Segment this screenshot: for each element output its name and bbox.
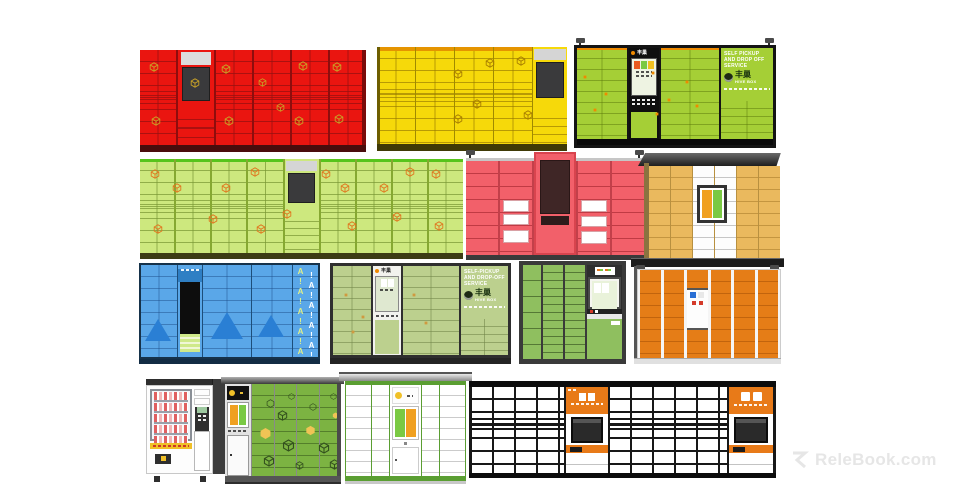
canopy bbox=[638, 153, 781, 166]
console-header bbox=[178, 269, 202, 282]
cube-icon bbox=[208, 214, 218, 224]
plinth bbox=[634, 358, 781, 364]
cube-icon bbox=[153, 224, 163, 234]
sq-icon bbox=[655, 112, 659, 116]
dark-green-locker-model bbox=[225, 377, 341, 484]
icon-layer bbox=[252, 384, 341, 478]
cube-icon bbox=[256, 224, 266, 234]
header-glyph bbox=[741, 392, 750, 401]
console-sign bbox=[587, 265, 622, 277]
locker-column bbox=[737, 166, 758, 258]
console-column bbox=[587, 265, 622, 359]
plinth bbox=[225, 476, 341, 484]
side-edge bbox=[377, 47, 380, 144]
screen-tray bbox=[180, 334, 200, 352]
slot-row bbox=[194, 389, 210, 396]
indicator-dot bbox=[404, 442, 407, 445]
machine-front bbox=[146, 385, 213, 474]
cube-icon bbox=[263, 455, 275, 467]
product-shelf bbox=[154, 425, 188, 435]
console-lower-doors bbox=[566, 453, 608, 473]
indicator-dot bbox=[590, 310, 593, 313]
cube-icon bbox=[516, 56, 526, 66]
locker-column bbox=[734, 270, 755, 358]
locker-columns: A!A!A!A!A! !A!A!A!A! bbox=[141, 265, 318, 357]
cube-icon bbox=[221, 64, 231, 74]
console-column bbox=[729, 387, 773, 473]
keypad-tablet bbox=[733, 447, 745, 452]
sq-icon bbox=[424, 321, 428, 325]
locker-column bbox=[664, 270, 685, 358]
cube-icon bbox=[190, 78, 200, 88]
cube-icon bbox=[332, 62, 342, 72]
console-header bbox=[566, 387, 608, 414]
locker-column bbox=[523, 265, 541, 359]
icon-layer bbox=[333, 266, 508, 355]
hexo-icon bbox=[309, 403, 317, 411]
cube-icon bbox=[434, 221, 444, 231]
console-column bbox=[178, 265, 202, 357]
small-green-locker-model bbox=[519, 261, 626, 364]
sq-icon bbox=[351, 330, 355, 334]
cube-icon bbox=[282, 439, 295, 452]
cube-icon bbox=[453, 114, 463, 124]
sq-icon bbox=[685, 80, 689, 84]
foot bbox=[154, 476, 160, 482]
canopy bbox=[221, 377, 344, 384]
vending-machine-model bbox=[146, 379, 229, 482]
blue-locker-model: A!A!A!A!A! !A!A!A!A! bbox=[139, 263, 320, 364]
cube-icon bbox=[277, 410, 288, 421]
locker-column bbox=[346, 385, 371, 476]
locker-column bbox=[671, 166, 692, 258]
console-column bbox=[534, 152, 576, 255]
mailbox-grid bbox=[610, 387, 727, 473]
sq-icon bbox=[695, 104, 699, 108]
product-shelf bbox=[154, 392, 188, 402]
cube-icon bbox=[340, 183, 350, 193]
cube-icon bbox=[276, 103, 285, 112]
locker-column bbox=[758, 270, 779, 358]
sq-icon bbox=[583, 75, 587, 79]
foot bbox=[200, 476, 206, 482]
side-edge bbox=[337, 384, 341, 478]
white-door bbox=[503, 230, 529, 243]
white-door bbox=[581, 200, 607, 211]
console-column bbox=[390, 385, 421, 476]
triangle-logo-icon bbox=[258, 315, 284, 337]
canvas: 丰巢 bbox=[0, 0, 960, 504]
console-screen bbox=[571, 417, 603, 443]
cube-icon bbox=[347, 221, 357, 231]
sign-plaque bbox=[595, 267, 615, 275]
door-handle-dot bbox=[395, 459, 397, 461]
screen-tray bbox=[541, 216, 569, 225]
logo-dot-icon bbox=[395, 392, 402, 399]
cube-icon bbox=[172, 183, 182, 193]
tan-locker-model bbox=[644, 153, 780, 262]
plinth bbox=[577, 139, 773, 145]
screen-tile bbox=[713, 190, 723, 218]
console-lower-doors bbox=[729, 453, 773, 473]
product-shelf bbox=[154, 414, 188, 424]
sq-icon bbox=[593, 108, 597, 112]
console-logo bbox=[392, 387, 419, 404]
console-lower-door bbox=[587, 319, 622, 359]
header-text-lines bbox=[571, 403, 603, 405]
locker-column bbox=[687, 270, 708, 358]
slot-row bbox=[194, 398, 210, 405]
cube-icon bbox=[334, 114, 344, 124]
pink-locker-model bbox=[466, 150, 644, 260]
keypad-panel bbox=[195, 407, 209, 433]
product-shelf bbox=[154, 403, 188, 413]
hexo-icon bbox=[288, 393, 295, 400]
icon-layer bbox=[577, 48, 773, 139]
locker-columns bbox=[523, 265, 622, 359]
plinth bbox=[139, 359, 320, 364]
console-screen bbox=[227, 402, 249, 428]
locker-columns bbox=[637, 269, 781, 359]
light-green-locker-model bbox=[140, 159, 463, 259]
header-glyph bbox=[588, 393, 595, 401]
control-panel-column bbox=[194, 389, 210, 471]
cube-icon bbox=[258, 78, 267, 87]
locker-column bbox=[372, 385, 389, 476]
yellow-locker-model bbox=[377, 47, 567, 151]
icon-layer bbox=[377, 47, 567, 144]
locker-column bbox=[649, 166, 670, 258]
cube-icon bbox=[431, 169, 441, 179]
white-door bbox=[503, 214, 529, 225]
long-white-locker-model bbox=[469, 381, 776, 478]
locker-column bbox=[543, 265, 563, 359]
cube-icon bbox=[295, 461, 304, 470]
cube-icon bbox=[379, 183, 389, 193]
security-camera-icon bbox=[635, 150, 644, 155]
screen-tile bbox=[406, 409, 416, 437]
dispense-slot bbox=[155, 454, 171, 464]
canopy bbox=[631, 258, 784, 267]
cube-icon bbox=[149, 62, 159, 72]
console-screen bbox=[697, 185, 727, 223]
label-tag bbox=[611, 321, 620, 325]
cube-icon bbox=[221, 183, 231, 193]
cube-icon bbox=[321, 169, 331, 179]
pickup-door bbox=[392, 447, 419, 474]
sq-icon bbox=[412, 293, 416, 297]
locker-column bbox=[203, 265, 251, 357]
sq-icon bbox=[604, 92, 608, 96]
pattern-text: A!A!A!A!A! bbox=[296, 267, 304, 357]
console-shelf bbox=[566, 445, 608, 453]
locker-body: A!A!A!A!A! !A!A!A!A! bbox=[139, 263, 320, 359]
icon-layer bbox=[140, 50, 366, 145]
screen-tile bbox=[230, 405, 238, 425]
triangle-logo-icon bbox=[145, 319, 171, 341]
watermark-text: ReleBook.com bbox=[815, 450, 937, 470]
header-text-lines bbox=[568, 389, 578, 391]
triangle-logo-icon bbox=[211, 312, 243, 339]
sq-icon bbox=[344, 293, 348, 297]
locker-column bbox=[500, 161, 532, 255]
locker-body: 丰巢 SELF-PICKUP AND DROP-OFF SERVICE bbox=[330, 263, 511, 358]
canopy bbox=[339, 372, 472, 381]
cube-icon bbox=[472, 99, 482, 109]
cube-icon bbox=[151, 116, 161, 126]
sage-hivebox-locker-model: 丰巢 SELF-PICKUP AND DROP-OFF SERVICE bbox=[330, 263, 511, 364]
screen-tile bbox=[239, 405, 247, 425]
console-screen bbox=[540, 160, 570, 214]
door-handle-dot bbox=[230, 454, 232, 456]
pickup-door bbox=[194, 431, 210, 471]
indicator-dot bbox=[692, 301, 696, 305]
locker-column bbox=[440, 385, 465, 476]
keypad-buttons bbox=[198, 415, 206, 417]
security-camera-icon bbox=[576, 38, 585, 43]
console-logo bbox=[227, 386, 249, 400]
screen-tile bbox=[395, 409, 405, 437]
console-column bbox=[225, 384, 251, 478]
app-icon bbox=[690, 292, 696, 298]
pattern-text: !A!A!A!A! bbox=[307, 271, 315, 357]
banner-strip bbox=[150, 443, 192, 449]
text-lines bbox=[228, 430, 248, 432]
locker-columns bbox=[345, 384, 466, 477]
hex-icon bbox=[305, 425, 316, 436]
console-screen bbox=[687, 288, 708, 330]
cube-icon bbox=[405, 167, 415, 177]
watermark: ReleBook.com bbox=[790, 450, 937, 470]
cube-icon bbox=[453, 69, 463, 79]
orange-locker-model bbox=[634, 258, 781, 364]
sq-icon bbox=[651, 71, 655, 75]
relebook-logo-icon bbox=[790, 450, 810, 470]
cube-icon bbox=[250, 167, 260, 177]
cube-icon bbox=[392, 212, 402, 222]
locker-column bbox=[578, 161, 610, 255]
sq-icon bbox=[667, 98, 671, 102]
pattern-column: A!A!A!A!A! !A!A!A!A! bbox=[293, 265, 318, 357]
console-screen bbox=[588, 277, 621, 309]
locker-column bbox=[640, 270, 661, 358]
logo-dot-icon bbox=[229, 390, 235, 396]
keypad-tablet bbox=[570, 447, 582, 452]
pickup-door bbox=[227, 435, 249, 476]
cube-icon bbox=[224, 116, 234, 126]
cube-icon bbox=[282, 209, 292, 219]
console-screen bbox=[180, 282, 200, 334]
plinth bbox=[345, 477, 466, 484]
side-edge bbox=[362, 50, 366, 145]
cube-icon bbox=[318, 442, 330, 454]
plinth bbox=[140, 253, 463, 259]
header-text-lines bbox=[734, 404, 768, 406]
indicator-dot bbox=[699, 301, 703, 305]
console-column bbox=[566, 387, 608, 473]
keypad-buttons bbox=[198, 419, 206, 421]
console-screen bbox=[734, 417, 768, 443]
security-camera-icon bbox=[466, 150, 475, 155]
icon-layer bbox=[140, 159, 463, 253]
cube-icon bbox=[150, 169, 160, 179]
locker-column bbox=[422, 385, 439, 476]
locker-column bbox=[759, 166, 780, 258]
hex-icon bbox=[259, 427, 272, 440]
plinth bbox=[330, 358, 511, 364]
plinth bbox=[469, 473, 776, 478]
header-glyph bbox=[579, 393, 586, 401]
header-glyph bbox=[753, 392, 762, 401]
keypad-screen bbox=[197, 407, 207, 413]
screen-card bbox=[594, 283, 601, 293]
indicator-dot bbox=[595, 310, 598, 313]
white-door bbox=[581, 216, 607, 227]
locker-column bbox=[466, 161, 498, 255]
console-shelf bbox=[729, 445, 773, 453]
app-icon bbox=[698, 292, 704, 298]
plinth bbox=[140, 145, 366, 152]
locker-column bbox=[141, 265, 177, 357]
security-camera-icon bbox=[765, 38, 774, 43]
locker-columns bbox=[472, 387, 773, 473]
locker-column bbox=[565, 265, 585, 359]
cube-icon bbox=[294, 116, 304, 126]
console-screen bbox=[392, 406, 419, 440]
white-green-locker-model bbox=[345, 372, 466, 484]
locker-column bbox=[252, 265, 292, 357]
plinth bbox=[466, 255, 644, 260]
sq-icon bbox=[361, 315, 365, 319]
green-hivebox-locker-model: 丰巢 bbox=[574, 38, 776, 148]
white-door bbox=[581, 231, 607, 244]
cube-icon bbox=[298, 61, 308, 71]
cube-icon bbox=[523, 110, 533, 120]
locker-column bbox=[711, 270, 732, 358]
white-door bbox=[503, 200, 529, 211]
mailbox-grid bbox=[472, 387, 564, 473]
locker-body: 丰巢 bbox=[574, 45, 776, 148]
locker-column bbox=[612, 161, 644, 255]
screen-tile bbox=[702, 190, 712, 218]
header-text-lines bbox=[181, 269, 199, 271]
banner-text-lines bbox=[153, 445, 189, 447]
hexo-icon bbox=[266, 399, 275, 408]
console-header bbox=[729, 387, 773, 414]
cube-icon bbox=[485, 58, 495, 68]
red-locker-model bbox=[140, 50, 366, 152]
screen-card bbox=[602, 283, 609, 293]
product-window bbox=[150, 389, 192, 441]
